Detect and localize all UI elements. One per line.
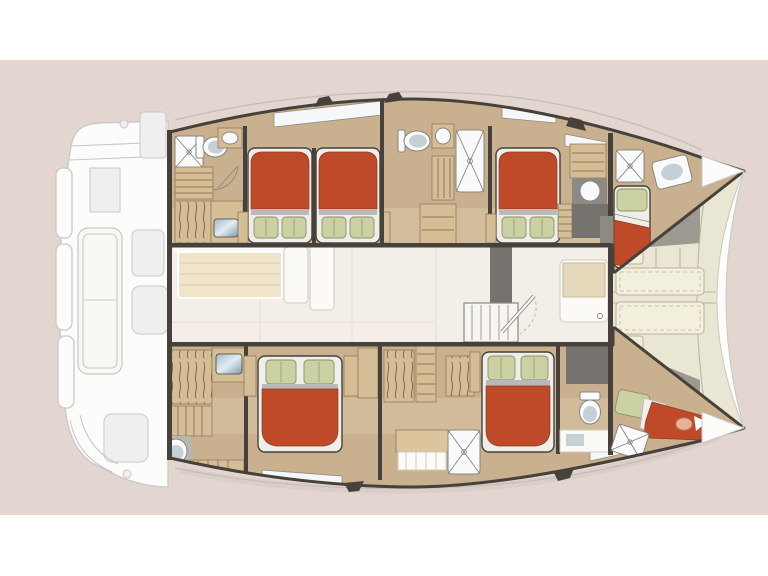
shelf-unit — [358, 348, 378, 398]
double-bed — [258, 356, 342, 452]
cleat-icon — [120, 120, 128, 128]
toilet-icon — [398, 130, 430, 152]
cleat-icon — [123, 470, 131, 478]
companionway-wall — [490, 245, 512, 305]
round-sink-icon — [580, 181, 600, 201]
foredeck-wall — [608, 245, 613, 345]
floor-plan-canvas — [0, 0, 768, 576]
cockpit-table-icon — [132, 230, 164, 276]
bench-icon — [398, 452, 446, 470]
nightstand — [486, 214, 496, 243]
nightstand — [244, 356, 256, 396]
saloon-wall — [170, 342, 612, 347]
aft-bench-icon — [140, 112, 166, 158]
shelf-unit — [570, 144, 606, 178]
sink-icon — [214, 219, 238, 237]
boat-floor-plan-page — [0, 0, 768, 576]
cockpit-seat-icon — [132, 286, 168, 334]
dresser — [420, 204, 456, 244]
bottom-margin-band — [0, 515, 768, 576]
sink-icon — [436, 128, 451, 144]
nightstand — [344, 356, 358, 396]
bench-icon — [616, 302, 704, 334]
saloon-wall — [170, 243, 612, 248]
saloon-galley — [172, 244, 610, 343]
swim-step — [56, 168, 72, 238]
desk — [396, 430, 448, 452]
settee-icon — [284, 247, 308, 303]
table-icon — [178, 252, 282, 298]
staircase-icon — [175, 167, 213, 199]
aft-bulkhead — [167, 130, 172, 460]
settee-icon — [310, 244, 334, 310]
shelf-unit — [416, 344, 436, 402]
sink-icon — [222, 132, 238, 144]
deck-panel — [90, 168, 120, 212]
deck-panel — [104, 414, 148, 462]
top-margin-band — [0, 0, 768, 60]
nightstand — [238, 212, 248, 243]
sink-icon — [566, 434, 584, 446]
double-bed — [482, 352, 554, 452]
swim-step — [56, 244, 72, 330]
staircase-icon — [558, 204, 572, 238]
shelf-unit — [432, 156, 454, 200]
technical-space — [566, 346, 610, 384]
toilet-icon — [580, 392, 601, 424]
sun-pad-icon — [78, 228, 122, 374]
sink-icon — [216, 354, 242, 374]
nightstand — [470, 352, 480, 392]
aft-deck-swim-platform — [56, 112, 168, 487]
swim-step — [58, 336, 74, 408]
